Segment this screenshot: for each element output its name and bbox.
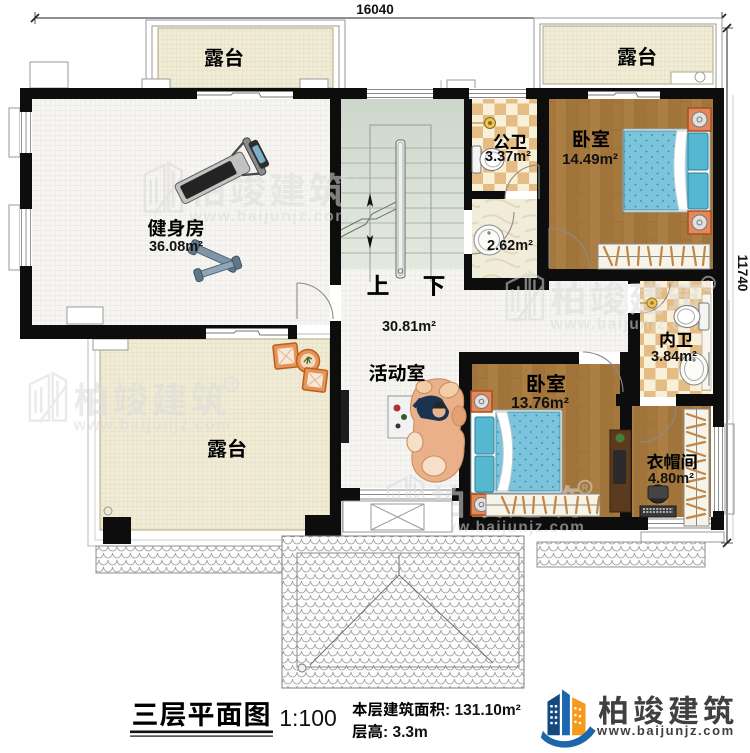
svg-text:3.84m²: 3.84m² — [651, 349, 697, 365]
svg-text:3.37m²: 3.37m² — [485, 149, 531, 165]
svg-text:2.62m²: 2.62m² — [487, 238, 533, 254]
svg-text:www.baijunjz.com: www.baijunjz.com — [596, 723, 735, 738]
svg-text:R: R — [228, 380, 235, 391]
svg-text:www.baijunjz.com: www.baijunjz.com — [73, 417, 232, 434]
svg-text:30.81m²: 30.81m² — [382, 319, 436, 335]
svg-text:16040: 16040 — [356, 2, 394, 17]
svg-text:11740: 11740 — [735, 255, 750, 292]
svg-text:www.baijunjz.com: www.baijunjz.com — [189, 208, 351, 225]
svg-text:4.80m²: 4.80m² — [648, 471, 694, 487]
svg-text:R: R — [705, 279, 712, 290]
svg-text:14.49m²: 14.49m² — [562, 151, 618, 168]
svg-text:: 3.3m: : 3.3m — [383, 724, 428, 741]
svg-text:13.76m²: 13.76m² — [511, 395, 569, 412]
svg-text:: 131.10m²: : 131.10m² — [445, 702, 521, 719]
svg-text:R: R — [347, 171, 354, 182]
svg-text:R: R — [582, 483, 589, 493]
svg-text:1:100: 1:100 — [279, 705, 337, 731]
svg-text:36.08m²: 36.08m² — [149, 239, 203, 255]
svg-text:www.baijunjz.com: www.baijunjz.com — [430, 519, 586, 536]
